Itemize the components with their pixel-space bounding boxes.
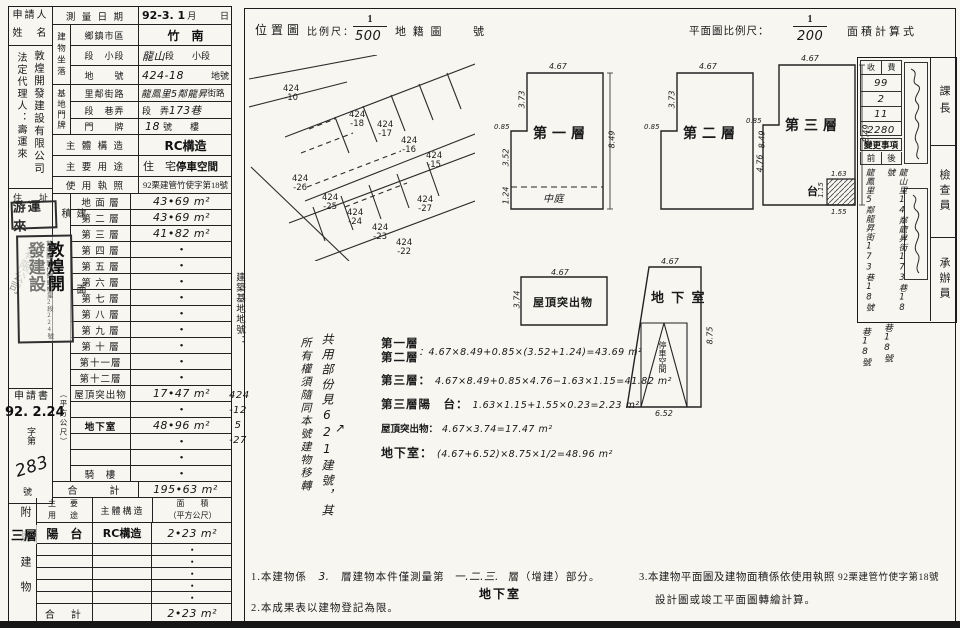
annex-structure-value: RC構造 xyxy=(93,523,153,543)
annex-side-cell: 附屬建物 xyxy=(9,498,37,623)
parcel-sub-no: -15 xyxy=(426,161,442,170)
calc-row-3: 第三層陽 台： 1.63×1.15+1.55×0.23=2.23 m² xyxy=(381,395,721,413)
annex-empty-struct xyxy=(93,580,153,591)
annex-empty-struct xyxy=(93,592,153,603)
lot-print: 地號 xyxy=(202,69,229,82)
floor2-dim-notch: 0.85 xyxy=(644,123,660,131)
site-lot-no-4: -27 xyxy=(229,433,247,448)
floor-total-value: 195•63 m² xyxy=(153,483,218,496)
doc-no-suffix: 號 xyxy=(23,485,32,498)
company-seal-address: 苗栗縣頭份鎮蟠桃里2段224號 xyxy=(42,240,54,342)
applicant-header-line2: 姓 名 xyxy=(9,25,52,43)
annex-empty-row: • xyxy=(37,580,232,592)
personal-seal: 游運來 xyxy=(11,200,58,230)
lane-print: 段 弄 xyxy=(142,104,169,117)
annex-empty-row: • xyxy=(37,544,232,556)
calc-row2-formula: 4.67×8.49+0.85×4.76−1.63×1.15=41.82 m² xyxy=(435,376,672,387)
left-form-table: 申請人 姓 名 敦煌開發建設有限公司 法定代理人：壽運來 住 址 游運來 敦煌開… xyxy=(8,6,232,622)
floor-label xyxy=(71,434,131,449)
floor3-balcony-label: 台 xyxy=(807,183,818,199)
annex-area-header: 面 積 （平方公尺） xyxy=(153,498,232,523)
annex-empty-row: • xyxy=(37,592,232,604)
floor-area-value: • xyxy=(131,242,232,257)
shared-note-col-left: 所有權須隨同本號建物移轉 xyxy=(297,337,313,533)
company-seal: 敦煌開 發建設 苗栗縣頭份鎮蟠桃里2段224號 xyxy=(16,235,74,344)
site-lot-no-3: 5 xyxy=(229,418,247,433)
site-lot-no-2: -12 xyxy=(229,403,247,418)
after-label: 後 xyxy=(882,152,901,164)
site-lot-label: 建築基地地號： xyxy=(232,272,246,382)
row-door-value: 18 號 樓 xyxy=(139,119,232,135)
calc-row1-label-a: 第一層 xyxy=(381,337,419,351)
annex-empty-row: • xyxy=(37,568,232,580)
annex-empty-use xyxy=(37,592,93,603)
parcel-sub-no: -16 xyxy=(401,146,417,155)
floor-row: • xyxy=(71,450,232,466)
before-label: 前 xyxy=(861,152,882,164)
annex-structure-header: 主體構造 xyxy=(93,498,153,523)
plan-scale-denominator: 200 xyxy=(797,29,823,44)
floor3-name: 第三層 xyxy=(785,115,842,135)
parcel-label: 424 -18 xyxy=(349,111,365,130)
fee-value-3: 11 xyxy=(861,107,901,122)
floor1-dim-left-upper: 3.73 xyxy=(517,91,526,109)
floor-label: 第十二層 xyxy=(71,370,131,385)
loc-scale-numerator: 1 xyxy=(353,13,387,27)
floor-area-value: 43•69 m² xyxy=(131,194,232,209)
annex-empty-area: • xyxy=(152,568,232,579)
floor-row: 第 四 層 • xyxy=(71,242,232,258)
roof-dim-left: 3.74 xyxy=(512,291,521,309)
application-cell: 申請書 92. 2.24 字第 283 號 xyxy=(9,383,53,504)
town-value: 竹 南 xyxy=(167,27,203,44)
calc-row-1: 第一層 第二層 ：4.67×8.49+0.85×(3.52+1.24)=43.6… xyxy=(381,337,721,365)
parcel-sub-no: -24 xyxy=(347,218,363,227)
floor3-dim-top: 4.67 xyxy=(801,54,819,63)
floor-row: 第 三 層 41•82 m² xyxy=(71,226,232,242)
floor1-dim-top: 4.67 xyxy=(549,62,567,71)
floor-area-value: • xyxy=(131,354,232,369)
row-door-label: 門 牌 xyxy=(71,119,139,135)
parcel-label: 424 -24 xyxy=(347,209,363,228)
footnote-3-line1: 3.本建物平面圖及建物面積係依使用執照 92栗建管竹使字第18號 xyxy=(639,569,951,584)
annex-use-header-2: 用 途 xyxy=(37,510,92,522)
row-lot-label: 地 號 xyxy=(71,66,139,85)
annex-empty-area: • xyxy=(152,544,232,555)
floor-label: 第 九 層 xyxy=(71,322,131,337)
shared-parts-note: 共用部份見621建號，其 所有權須隨同本號建物移轉 ↗ xyxy=(295,333,351,533)
site-lot-no-1: 424 xyxy=(229,388,247,403)
floor-label: 第 二 層 xyxy=(71,210,131,225)
fee-table: 收 費 99 2 11 2280 xyxy=(860,60,902,136)
calc-row4-label: 屋頂突出物： xyxy=(381,425,438,435)
floor-row: 第 九 層 • xyxy=(71,322,232,338)
before-address: 龍鳳里5鄰龍昇街173巷18號 xyxy=(863,168,875,320)
parcel-sub-no: -27 xyxy=(417,205,433,214)
basement-dim-top: 4.67 xyxy=(661,257,679,266)
floor-row: 第十二層 • xyxy=(71,370,232,386)
floor1-name: 第一層 xyxy=(533,123,590,143)
floor-total-cell: 195•63 m² xyxy=(139,482,232,498)
calc-row-5: 地下室： (4.67+6.52)×8.75×1/2=48.96 m² xyxy=(381,444,721,462)
title-handler: 承辦員 xyxy=(930,238,957,321)
usage-value: 停車空間 xyxy=(176,159,218,174)
floor-area-value: • xyxy=(131,338,232,353)
cadastral-map-label: 地 籍 圖 xyxy=(395,23,444,39)
footnote-1-pre: 1.本建物係 xyxy=(251,572,307,583)
floor-area-table: 地 面 層 43•69 m² 第 二 層 43•69 m² 第 三 層 41•8… xyxy=(71,194,232,482)
floor-area-value: • xyxy=(131,370,232,385)
floor-row: 第 八 層 • xyxy=(71,306,232,322)
floor-row: 第 二 層 43•69 m² xyxy=(71,210,232,226)
calc-row3-formula: 1.63×1.15+1.55×0.23=2.23 m² xyxy=(473,400,640,411)
footnote-3-pre: 3.本建物平面圖及建物面積係依使用執照 xyxy=(639,572,835,583)
annex-side-label: 附屬建物 xyxy=(17,506,33,618)
floor-label: 第 六 層 xyxy=(71,274,131,289)
parcel-label: 424 -26 xyxy=(292,175,308,194)
annex-empty-struct xyxy=(93,544,153,555)
floor3-dim-left-low: 4.76 xyxy=(755,155,764,173)
structure-value-cell: RC構造 xyxy=(139,135,232,156)
lane-hand: 173巷 xyxy=(169,103,202,118)
area-calc-title: 面積計算式 xyxy=(847,23,917,39)
floor-area-value: • xyxy=(131,322,232,337)
calc-row5-label: 地下室： xyxy=(381,446,433,460)
floor-row: • xyxy=(71,402,232,418)
village-print: 街路 xyxy=(208,87,225,99)
footnote-3: 3.本建物平面圖及建物面積係依使用執照 92栗建管竹使字第18號 設計圖或竣工平… xyxy=(639,569,951,607)
floor-area-value: 43•69 m² xyxy=(131,210,232,225)
parcel-label: 424 -22 xyxy=(396,239,412,258)
floor-label: 地下室 xyxy=(71,418,131,433)
annex-empty-use xyxy=(37,556,93,567)
roof-name: 屋頂突出物 xyxy=(533,294,593,310)
calc-row3-label: 第三層陽 台： xyxy=(381,399,469,411)
applicant-company: 敦煌開發建設有限公司 xyxy=(31,50,46,186)
application-label: 申請書 xyxy=(14,387,50,402)
parcel-label: 424 -27 xyxy=(417,196,433,215)
floor-row: 第十一層 • xyxy=(71,354,232,370)
usage-pre: 住 宅 xyxy=(143,158,176,174)
floor-row: 地 面 層 43•69 m² xyxy=(71,194,232,210)
footnote-1-hand-floors: 3. xyxy=(311,571,338,583)
floor-label: 第 三 層 xyxy=(71,226,131,241)
section-print: 段 小段 xyxy=(165,49,210,62)
floor-row: 地下室 48•96 m² xyxy=(71,418,232,434)
floor-area-value: 17•47 m² xyxy=(131,386,232,401)
location-map-title: 位置圖 xyxy=(255,21,303,38)
survey-day-label: 日 xyxy=(220,9,229,22)
change-items-label: 變更事項 xyxy=(860,138,902,151)
village-hand: 龍鳳里5鄰龍昇 xyxy=(141,86,208,100)
signature-scribble-2 xyxy=(905,189,927,279)
footnote-1-mid: 層建物本件僅測量第 xyxy=(341,572,445,583)
floor-row: • xyxy=(71,434,232,450)
title-inspector: 檢查員 xyxy=(930,146,957,238)
floor-area-value: • xyxy=(131,402,232,417)
annex-empty-struct xyxy=(93,556,153,567)
footnote-3-line2: 設計圖或竣工平面圖轉繪計算。 xyxy=(655,592,951,607)
floor-area-value: • xyxy=(131,290,232,305)
license-label: 使 用 執 照 xyxy=(53,177,139,194)
floor3-dim-balcony-bottom: 1.55 xyxy=(831,208,847,216)
legal-agent: 法定代理人：壽運來 xyxy=(13,52,28,184)
floor-row: 第 六 層 • xyxy=(71,274,232,290)
group-site-address: 基地門牌 xyxy=(53,85,71,135)
floor-area-value: • xyxy=(131,306,232,321)
floor-label: 第 四 層 xyxy=(71,242,131,257)
fee-header-receive: 收 xyxy=(861,61,882,74)
row-town-value: 竹 南 xyxy=(139,25,232,46)
annex-empty-use xyxy=(37,580,93,591)
calc-row4-formula: 4.67×3.74=17.47 m² xyxy=(442,424,553,435)
footnote-basement-hand: 地下室 xyxy=(479,585,521,602)
floor-row: 騎 樓 • xyxy=(71,466,232,482)
annex-empty-area: • xyxy=(152,592,232,603)
shared-note-arrow: ↗ xyxy=(335,421,346,435)
scale-label: 比例尺： xyxy=(307,23,355,38)
loc-scale-denominator: 500 xyxy=(355,29,381,44)
group-building-location: 建物坐落 xyxy=(53,25,71,85)
floor-row: 第 五 層 • xyxy=(71,258,232,274)
floor-label: 第十一層 xyxy=(71,354,131,369)
section-hand: 龍山 xyxy=(142,48,165,64)
floor-area-value: • xyxy=(131,274,232,289)
applicant-header: 申請人 姓 名 xyxy=(9,7,53,46)
row-lot-value: 424-18 地號 xyxy=(139,66,232,85)
parcel-label: 424 -23 xyxy=(372,224,388,243)
floor2-dim-left-upper: 3.73 xyxy=(667,91,676,109)
floor-area-value: • xyxy=(131,434,232,449)
parcel-label: 424 -17 xyxy=(377,121,393,140)
row-village-value: 龍鳳里5鄰龍昇 街路 xyxy=(139,85,232,102)
floor-label: 第 十 層 xyxy=(71,338,131,353)
floor1-plan: 4.67 3.73 0.85 3.52 1.24 8.49 第一層 中庭 xyxy=(497,59,619,225)
plan-scale-numerator: 1 xyxy=(793,13,827,27)
calc-row-4: 屋頂突出物： 4.67×3.74=17.47 m² xyxy=(381,419,721,437)
parcel-sub-no: -17 xyxy=(377,130,393,139)
usage-value-cell: 住 宅 停車空間 xyxy=(139,156,232,177)
row-section-label: 段 小段 xyxy=(71,46,139,66)
floor-label: 第 八 層 xyxy=(71,306,131,321)
survey-month-label: 月 xyxy=(187,9,196,22)
address-tail-2: 巷18號 xyxy=(881,323,894,373)
site-lot-numbers: 424 -12 5 -27 xyxy=(229,388,247,448)
annex-empty-struct xyxy=(93,568,153,579)
annex-area-header-1: 面 積 xyxy=(153,498,232,510)
annex-use-header: 主 要 用 途 xyxy=(37,498,93,523)
survey-date-label: 測 量 日 期 xyxy=(53,7,139,25)
address-tail-1: 巷18號 xyxy=(859,327,872,377)
area-col-sublabel: （平方公尺） xyxy=(58,390,69,476)
fee-value-2: 2 xyxy=(861,92,901,107)
floor-row: 第 七 層 • xyxy=(71,290,232,306)
footnote-1-post: 層（增建）部分。 xyxy=(508,572,600,583)
annex-area-value: 2•23 m² xyxy=(152,523,232,543)
footnote-1-hand-levels: 一.二.三. xyxy=(448,571,505,583)
scanned-building-survey-form: 申請人 姓 名 敦煌開發建設有限公司 法定代理人：壽運來 住 址 游運來 敦煌開… xyxy=(0,0,960,628)
annex-floor-hand: 三層 xyxy=(11,525,37,544)
floor-label: 第 七 層 xyxy=(71,290,131,305)
doc-no-prefix: 字第 xyxy=(25,427,38,457)
signature-scribble-1 xyxy=(905,63,927,163)
annex-empty-use xyxy=(37,568,93,579)
floor-label: 屋頂突出物 xyxy=(71,386,131,401)
scan-edge xyxy=(0,621,960,628)
floor-row: 第 十 層 • xyxy=(71,338,232,354)
cadastral-map-labels: 424 -10 424 -18 424 -17 424 xyxy=(249,55,475,261)
calc-row2-label: 第三層： xyxy=(381,375,431,387)
fee-header-row: 收 費 xyxy=(861,61,901,75)
basement-name: 地 下 室 xyxy=(651,287,707,306)
floor1-dim-notch: 0.85 xyxy=(494,123,510,131)
title-section-chief: 課長 xyxy=(930,58,957,146)
floor3-dim-notch: 0.85 xyxy=(746,117,762,125)
calc-row5-formula: (4.67+6.52)×8.75×1/2=48.96 m² xyxy=(437,449,613,460)
floor-label: 地 面 層 xyxy=(71,194,131,209)
parcel-label: 424 -25 xyxy=(322,194,338,213)
door-print: 號 樓 xyxy=(163,120,199,133)
floor-area-value: • xyxy=(131,258,232,273)
parcel-label: 424 -10 xyxy=(283,85,299,104)
parcel-sub-no: -18 xyxy=(349,120,365,129)
annex-empty-area: • xyxy=(152,580,232,591)
calc-row-2: 第三層： 4.67×8.49+0.85×4.76−1.63×1.15=41.82… xyxy=(381,371,721,389)
row-village-label: 里鄰街路 xyxy=(71,85,139,102)
applicant-cell: 敦煌開發建設有限公司 法定代理人：壽運來 xyxy=(9,46,53,189)
roof-dim-top: 4.67 xyxy=(551,268,569,277)
row-town-label: 鄉鎮市區 xyxy=(71,25,139,46)
calc-row1-formula: ：4.67×8.49+0.85×(3.52+1.24)=43.69 m² xyxy=(419,344,643,358)
fee-value-1: 99 xyxy=(861,75,901,92)
license-value-cell: 92栗建管竹使字第18號 xyxy=(139,177,232,194)
floor1-court-label: 中庭 xyxy=(543,190,564,205)
door-hand: 18 xyxy=(145,120,160,133)
floor-area-value: 41•82 m² xyxy=(131,226,232,241)
footnote-3-license-no: 92栗建管竹使字第18號 xyxy=(838,573,939,583)
license-value: 92栗建管竹使字第18號 xyxy=(143,179,228,191)
before-after-header: 前 後 xyxy=(860,152,902,165)
parcel-sub-no: -26 xyxy=(292,184,308,193)
shared-note-col-right: 共用部份見621建號，其 xyxy=(319,333,336,531)
annex-bullet-rows: • • • • xyxy=(37,544,232,604)
annex-use-header-1: 主 要 xyxy=(37,498,92,510)
cadastral-no-label: 號 xyxy=(473,23,484,39)
annex-empty-row: • xyxy=(37,556,232,568)
floor-area-value: • xyxy=(131,466,232,481)
calc-row1-label-b: 第二層 xyxy=(381,351,419,365)
floor1-dim-left-mid: 3.52 xyxy=(501,149,510,167)
annex-row-1: 陽 台 RC構造 2•23 m² xyxy=(37,523,232,544)
structure-label: 主 體 構 造 xyxy=(53,135,139,156)
site-lot-strip: 建築基地地號： 424 -12 5 -27 xyxy=(229,272,247,502)
floor-total-label: 合 計 xyxy=(53,482,139,498)
floor-label: 第 五 層 xyxy=(71,258,131,273)
applicant-header-line1: 申請人 xyxy=(9,7,52,25)
parcel-label: 424 -16 xyxy=(401,137,417,156)
annex-empty-use xyxy=(37,544,93,555)
floor3-dim-balcony-top: 1.63 xyxy=(831,170,847,178)
cadastral-map: 424 -10 424 -18 424 -17 424 xyxy=(249,55,475,261)
calc-row1-labels: 第一層 第二層 xyxy=(381,337,419,365)
parcel-sub-no: -22 xyxy=(396,248,412,257)
doc-no-value: 283 xyxy=(13,452,51,482)
parcel-sub-no: -25 xyxy=(322,203,338,212)
floor-area-value: 48•96 m² xyxy=(131,418,232,433)
floor2-name: 第二層 xyxy=(683,123,740,143)
fee-header-fee: 費 xyxy=(882,61,901,74)
roof-plan: 4.67 3.74 屋頂突出物 xyxy=(509,267,617,333)
parcel-sub-no: -23 xyxy=(372,233,388,242)
after-address: 龍山里14鄰龍昇街173巷18號 xyxy=(884,168,908,320)
annex-empty-area: • xyxy=(152,556,232,567)
row-lane-value: 段 弄 173巷 xyxy=(139,102,232,119)
usage-label: 主 要 用 途 xyxy=(53,156,139,177)
floor-label xyxy=(71,402,131,417)
survey-date-stamp: 92-3. 1 xyxy=(142,9,185,22)
stamp-box-1 xyxy=(904,62,928,164)
survey-date-value: 92-3. 1 月 日 xyxy=(139,7,232,25)
lot-hand: 424-18 xyxy=(142,69,184,82)
annex-area-header-2: （平方公尺） xyxy=(153,510,232,522)
review-panel: 課長 檢查員 承辦員 收 費 99 2 xyxy=(857,57,957,323)
area-calc-block: 第一層 第二層 ：4.67×8.49+0.85×(3.52+1.24)=43.6… xyxy=(381,337,721,465)
row-lane-label: 段 巷弄 xyxy=(71,102,139,119)
floor-label xyxy=(71,450,131,465)
floor2-dim-top: 4.67 xyxy=(699,62,717,71)
fee-value-4: 2280 xyxy=(861,122,901,138)
annex-use-value: 陽 台 xyxy=(37,523,93,543)
floor-area-value: • xyxy=(131,450,232,465)
floor1-dim-right: 8.49 xyxy=(607,131,616,149)
parcel-sub-no: -10 xyxy=(283,94,299,103)
plan-scale-label: 平面圖比例尺： xyxy=(689,23,770,38)
row-section-value: 龍山 段 小段 xyxy=(139,46,232,66)
floor-row: 屋頂突出物 17•47 m² xyxy=(71,386,232,402)
floor1-dim-left-low: 1.24 xyxy=(501,187,510,205)
floor-label: 騎 樓 xyxy=(71,466,131,481)
structure-value: RC構造 xyxy=(164,137,206,154)
parcel-label: 424 -15 xyxy=(426,152,442,171)
drawing-panel: 位置圖 比例尺： 1 500 地 籍 圖 號 平面圖比例尺： 1 200 面積計… xyxy=(244,8,956,622)
